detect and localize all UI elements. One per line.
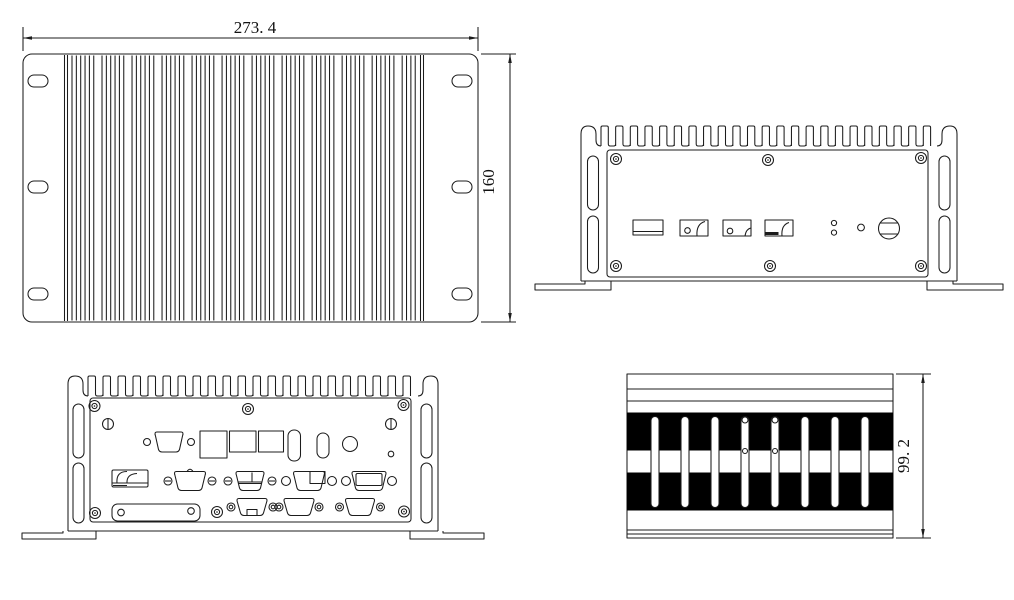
display-port (282, 472, 337, 491)
rear-panel (90, 398, 411, 522)
arrow-bottom (921, 529, 925, 538)
power-button (879, 218, 900, 239)
reset-button (858, 224, 865, 231)
rear-view (22, 376, 484, 539)
mounting-foot (927, 281, 1003, 290)
panel-screw (916, 153, 927, 164)
panel-screw (916, 261, 927, 272)
serial-port (227, 499, 277, 516)
technical-drawing-page: 273. 4 160 (0, 0, 1014, 600)
led-indicators (831, 220, 836, 235)
panel-screw (763, 155, 774, 166)
dvi-port (112, 504, 200, 521)
serial-port (275, 499, 323, 516)
panel-screw (243, 404, 254, 415)
hdmi-port-vertical (317, 433, 329, 458)
side-slot (588, 216, 599, 273)
arrow-left (23, 36, 32, 40)
side-slot (939, 156, 950, 210)
side-slot (588, 156, 599, 210)
side-view: 99. 2 (627, 374, 931, 538)
front-panel (607, 150, 928, 277)
mounting-slot (28, 75, 48, 87)
side-slot (421, 463, 432, 523)
lan-port (200, 431, 227, 458)
serial-port (164, 469, 216, 490)
side-slot (421, 404, 432, 458)
mounting-foot (410, 531, 484, 539)
screw-hole (742, 417, 748, 423)
dimension-width-label: 273. 4 (234, 18, 277, 37)
left-shoulder (68, 376, 88, 531)
front-view (535, 126, 1003, 290)
heatsink-fin-stripes (72, 56, 415, 321)
arrow-right (469, 36, 478, 40)
io-cutout-port (723, 220, 751, 236)
arrow-bottom (508, 313, 512, 322)
mounting-foot (22, 531, 96, 539)
panel-screw (212, 507, 223, 518)
dimension-depth: 160 (479, 54, 516, 322)
dimension-height: 99. 2 (894, 374, 931, 538)
heatsink-fins (601, 126, 931, 146)
side-slot (939, 216, 950, 273)
mounting-slot (452, 181, 472, 193)
pinhole (388, 451, 394, 457)
panel-screw (611, 261, 622, 272)
vga-port (144, 432, 195, 452)
mounting-foot (535, 281, 611, 290)
panel-screw (90, 508, 101, 519)
screw-hole (772, 417, 778, 423)
usb-port (259, 431, 284, 452)
dimension-depth-label: 160 (479, 169, 498, 195)
antenna-hole (103, 419, 114, 430)
dimension-width: 273. 4 (23, 18, 478, 51)
side-slot (73, 404, 84, 458)
side-slot (73, 463, 84, 523)
usb-port (230, 431, 257, 452)
chassis-top-outline (23, 54, 478, 322)
heatsink-fins (88, 376, 411, 396)
drawing-canvas: 273. 4 160 (0, 0, 1014, 600)
front-io-ports (633, 218, 900, 239)
serial-port (224, 472, 276, 491)
screw-hole (773, 449, 778, 454)
power-input-slot (633, 220, 663, 235)
usb-port-vertical (288, 430, 301, 461)
antenna-connector (343, 437, 358, 452)
right-shoulder (937, 126, 957, 281)
rubber-band-lower (628, 473, 893, 510)
mounting-slot (28, 288, 48, 300)
dimension-height-label: 99. 2 (894, 439, 913, 473)
mounting-slot (28, 181, 48, 193)
panel-screw (399, 506, 410, 517)
antenna-hole (386, 419, 397, 430)
side-outline (627, 374, 893, 538)
extrusion-lines (627, 389, 893, 534)
serial-port (336, 499, 385, 516)
panel-screw (765, 261, 776, 272)
panel-screw (611, 154, 622, 165)
arrow-top (508, 54, 512, 63)
mounting-slot (452, 75, 472, 87)
top-view: 273. 4 160 (23, 18, 516, 322)
mounting-slots (28, 75, 472, 300)
arrow-top (921, 374, 925, 383)
panel-screw (89, 401, 100, 412)
screw-hole (743, 449, 748, 454)
vga-port (342, 472, 397, 491)
rubber-band-upper (628, 413, 893, 450)
panel-screw (398, 400, 409, 411)
sim-card-slot (765, 220, 793, 236)
mounting-slot (452, 288, 472, 300)
power-terminal-block (112, 470, 148, 487)
io-cutout-port (680, 220, 708, 236)
